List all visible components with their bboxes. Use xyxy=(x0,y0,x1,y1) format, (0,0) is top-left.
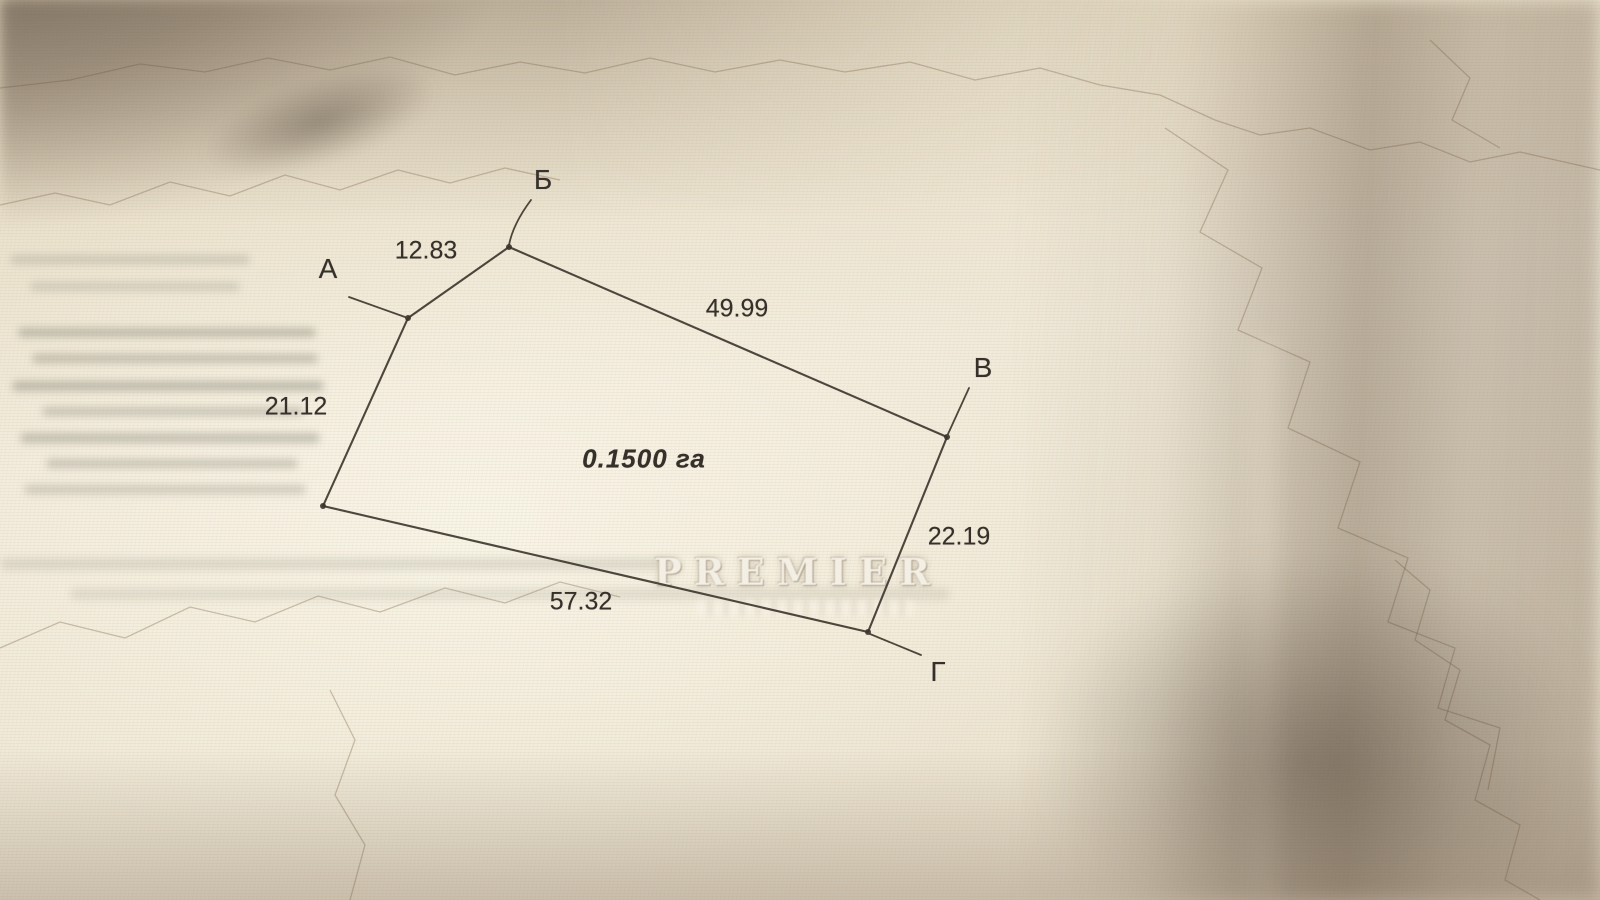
vertex-dot-a xyxy=(405,315,411,321)
leader-line-g xyxy=(870,634,921,655)
ink-bleed-smudge xyxy=(46,459,298,468)
ink-bleed-smudge xyxy=(18,328,316,337)
side-length-ab: 12.83 xyxy=(395,237,458,266)
ink-bleed-smudge xyxy=(24,485,306,494)
vertex-label-v: В xyxy=(974,352,993,384)
shadow-overlay-top-band xyxy=(0,0,1250,220)
ink-bleed-smudge xyxy=(12,381,324,391)
ink-bleed-smudge xyxy=(70,588,950,600)
vertex-dot-unlabeled xyxy=(320,503,326,509)
shadow-overlay-top-left xyxy=(0,0,1600,900)
guilloche-texture xyxy=(0,0,1600,900)
watermark-text: PREMIER xyxy=(654,550,942,594)
guilloche-contours xyxy=(0,0,1600,900)
shadow-overlay-bottom-right xyxy=(940,480,1600,900)
shadow-overlay-streak xyxy=(140,15,500,229)
parcel-boundary xyxy=(323,247,947,632)
side-length-gd: 57.32 xyxy=(550,588,613,617)
ink-bleed-smudge xyxy=(0,558,660,570)
area-label: 0.1500 га xyxy=(582,444,706,475)
side-length-bv: 49.99 xyxy=(706,295,769,324)
side-length-da: 21.12 xyxy=(265,393,328,422)
shadow-overlay-bottom-edge xyxy=(0,750,1600,900)
contour-top xyxy=(0,57,1600,170)
contour-bottom-right xyxy=(1395,560,1540,900)
paper-background xyxy=(0,0,1600,900)
leader-line-v xyxy=(948,388,969,434)
photo-of-parcel-plan: PREMIER А Б В Г 12.83 49.99 22.19 57.32 … xyxy=(0,0,1600,900)
parcel-diagram xyxy=(0,0,1600,900)
vertex-dot-v xyxy=(944,434,950,440)
ink-bleed-smudge xyxy=(20,433,320,443)
leader-line-b xyxy=(509,200,531,245)
contour-lower-left xyxy=(0,582,620,648)
ink-bleed-smudge xyxy=(10,255,250,264)
vertex-dot-b xyxy=(506,244,512,250)
contour-upper-left xyxy=(0,168,560,205)
side-length-vg: 22.19 xyxy=(928,523,991,552)
ink-bleed-smudge xyxy=(42,407,304,416)
contour-bottom-left-vertical xyxy=(330,690,365,900)
shadow-overlay-right-band xyxy=(1020,0,1600,900)
ink-bleed-smudge xyxy=(30,282,240,291)
vertex-label-a: А xyxy=(319,253,338,285)
watermark-subtext-blur xyxy=(696,600,914,616)
light-streak-right xyxy=(1246,340,1280,900)
leader-line-a xyxy=(349,297,405,317)
contour-right-blob xyxy=(1165,128,1500,790)
ink-bleed-smudge xyxy=(32,354,318,363)
vertex-dot-g xyxy=(865,629,871,635)
vertex-label-b: Б xyxy=(534,164,552,196)
contour-top-right xyxy=(1430,40,1500,148)
vertex-label-g: Г xyxy=(930,656,945,688)
